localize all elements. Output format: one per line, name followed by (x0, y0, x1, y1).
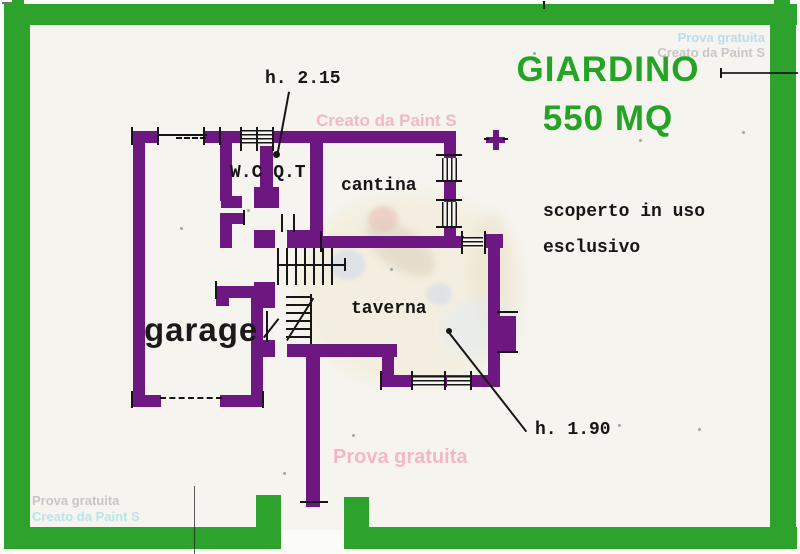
window-symbol (257, 130, 272, 146)
wall-end-tick (380, 371, 382, 390)
scan-speck (639, 139, 642, 142)
scan-speck (283, 472, 286, 475)
wall (221, 196, 242, 208)
wall-end-tick (436, 154, 462, 156)
window-symbol (447, 376, 471, 387)
window-symbol (442, 158, 458, 182)
wall-end-tick (243, 210, 245, 225)
scan-speck (698, 428, 701, 431)
wall-end-tick (157, 127, 159, 145)
scan-speck (352, 434, 355, 437)
courtyard-note-line1: scoperto in uso (543, 202, 705, 222)
garage-door-dashed-line (160, 397, 222, 399)
scan-speck (618, 424, 621, 427)
garden-border-segment (770, 4, 796, 549)
garden-border-segment (774, 0, 790, 6)
wall-end-tick (543, 1, 545, 9)
wall-end-tick (262, 391, 264, 408)
wall-end-tick (300, 501, 328, 503)
garden-label: GIARDINO 550 MQ (500, 52, 716, 136)
wall-end-tick (240, 127, 242, 151)
wall (254, 282, 275, 308)
pointer-dot (446, 328, 452, 334)
wall (220, 213, 243, 224)
wall (306, 346, 320, 507)
wall-end-tick (344, 258, 346, 271)
courtyard-note-line2: esclusivo (543, 238, 640, 258)
garden-label-line2: 550 MQ (500, 101, 716, 136)
garden-border-segment (4, 4, 797, 25)
wall-end-tick (215, 281, 217, 299)
height-annotation-upper: h. 2.15 (265, 69, 341, 89)
wall (254, 187, 279, 208)
wall-end-tick (131, 127, 133, 145)
garden-border-segment (4, 4, 30, 549)
wall-end-tick (497, 311, 518, 313)
wall (444, 131, 456, 248)
stair-handrail-line (277, 264, 345, 266)
scan-artifact-line (721, 72, 798, 74)
scan-speck (247, 209, 250, 212)
room-label-cantina: cantina (341, 176, 417, 196)
wall-end-tick (256, 127, 258, 151)
scanned-floor-plan-page: Prova gratuita Creato da Paint S Creato … (0, 0, 800, 554)
wall (287, 344, 397, 357)
height-annotation-lower: h. 1.90 (535, 420, 611, 440)
room-label-taverna: taverna (351, 299, 427, 319)
watermark-top-right-line1: Prova gratuita (678, 30, 765, 45)
wall-end-tick (131, 391, 133, 408)
garden-border-segment (4, 527, 281, 549)
garage-top-opening-dashes (176, 137, 206, 139)
wall-end-tick (484, 138, 489, 140)
wall-end-tick (320, 231, 322, 252)
garden-label-line1: GIARDINO (500, 52, 716, 87)
palette-blob (426, 283, 452, 305)
wall-end-tick (497, 351, 518, 353)
pointer-dot (273, 151, 280, 158)
watermark-bottom-left-line2: Creato da Paint S (32, 509, 140, 524)
wall-end-tick (203, 127, 205, 145)
wall (287, 230, 320, 248)
wall-end-tick (436, 180, 462, 182)
wall-end-tick (272, 127, 274, 151)
window-symbol (463, 237, 483, 248)
wall-end-tick (436, 199, 462, 201)
wall-end-tick (293, 214, 295, 232)
room-label-garage: garage (144, 311, 258, 349)
staircase-upper-flight (277, 248, 333, 285)
wall-end-tick (436, 226, 462, 228)
garage-top-opening-line (158, 134, 207, 136)
wall (322, 236, 464, 248)
garden-border-segment (256, 495, 281, 529)
scan-speck (742, 131, 745, 134)
garden-border-segment (344, 497, 369, 529)
wall-end-tick (484, 231, 486, 254)
scan-artifact-line (194, 486, 195, 554)
wall-end-tick (411, 371, 413, 390)
wall (254, 230, 275, 248)
window-symbol (241, 130, 256, 146)
window-symbol (442, 202, 458, 228)
scan-speck (390, 268, 393, 271)
room-label-wc: W.C Q.T (230, 163, 306, 183)
watermark-top-center: Creato da Paint S (316, 111, 457, 131)
scan-speck (180, 227, 183, 230)
window-symbol (413, 376, 444, 387)
watermark-bottom-left-line1: Prova gratuita (32, 493, 119, 508)
wall-end-tick (470, 371, 472, 390)
wall (382, 346, 394, 387)
wall (500, 316, 516, 352)
garden-border-segment (12, 0, 24, 6)
scan-artifact-line (2, 2, 12, 4)
wall-end-tick (503, 138, 508, 140)
watermark-bottom-center: Prova gratuita (333, 446, 467, 469)
garden-border-segment (344, 527, 797, 549)
wall-end-tick (281, 214, 283, 232)
wall-end-tick (444, 371, 446, 390)
door-leaf-line (266, 311, 268, 342)
wall-end-tick (461, 231, 463, 254)
wall (216, 286, 229, 306)
wall (133, 395, 161, 407)
wall (310, 131, 456, 143)
wall (133, 131, 145, 407)
wall-end-tick (219, 127, 221, 145)
